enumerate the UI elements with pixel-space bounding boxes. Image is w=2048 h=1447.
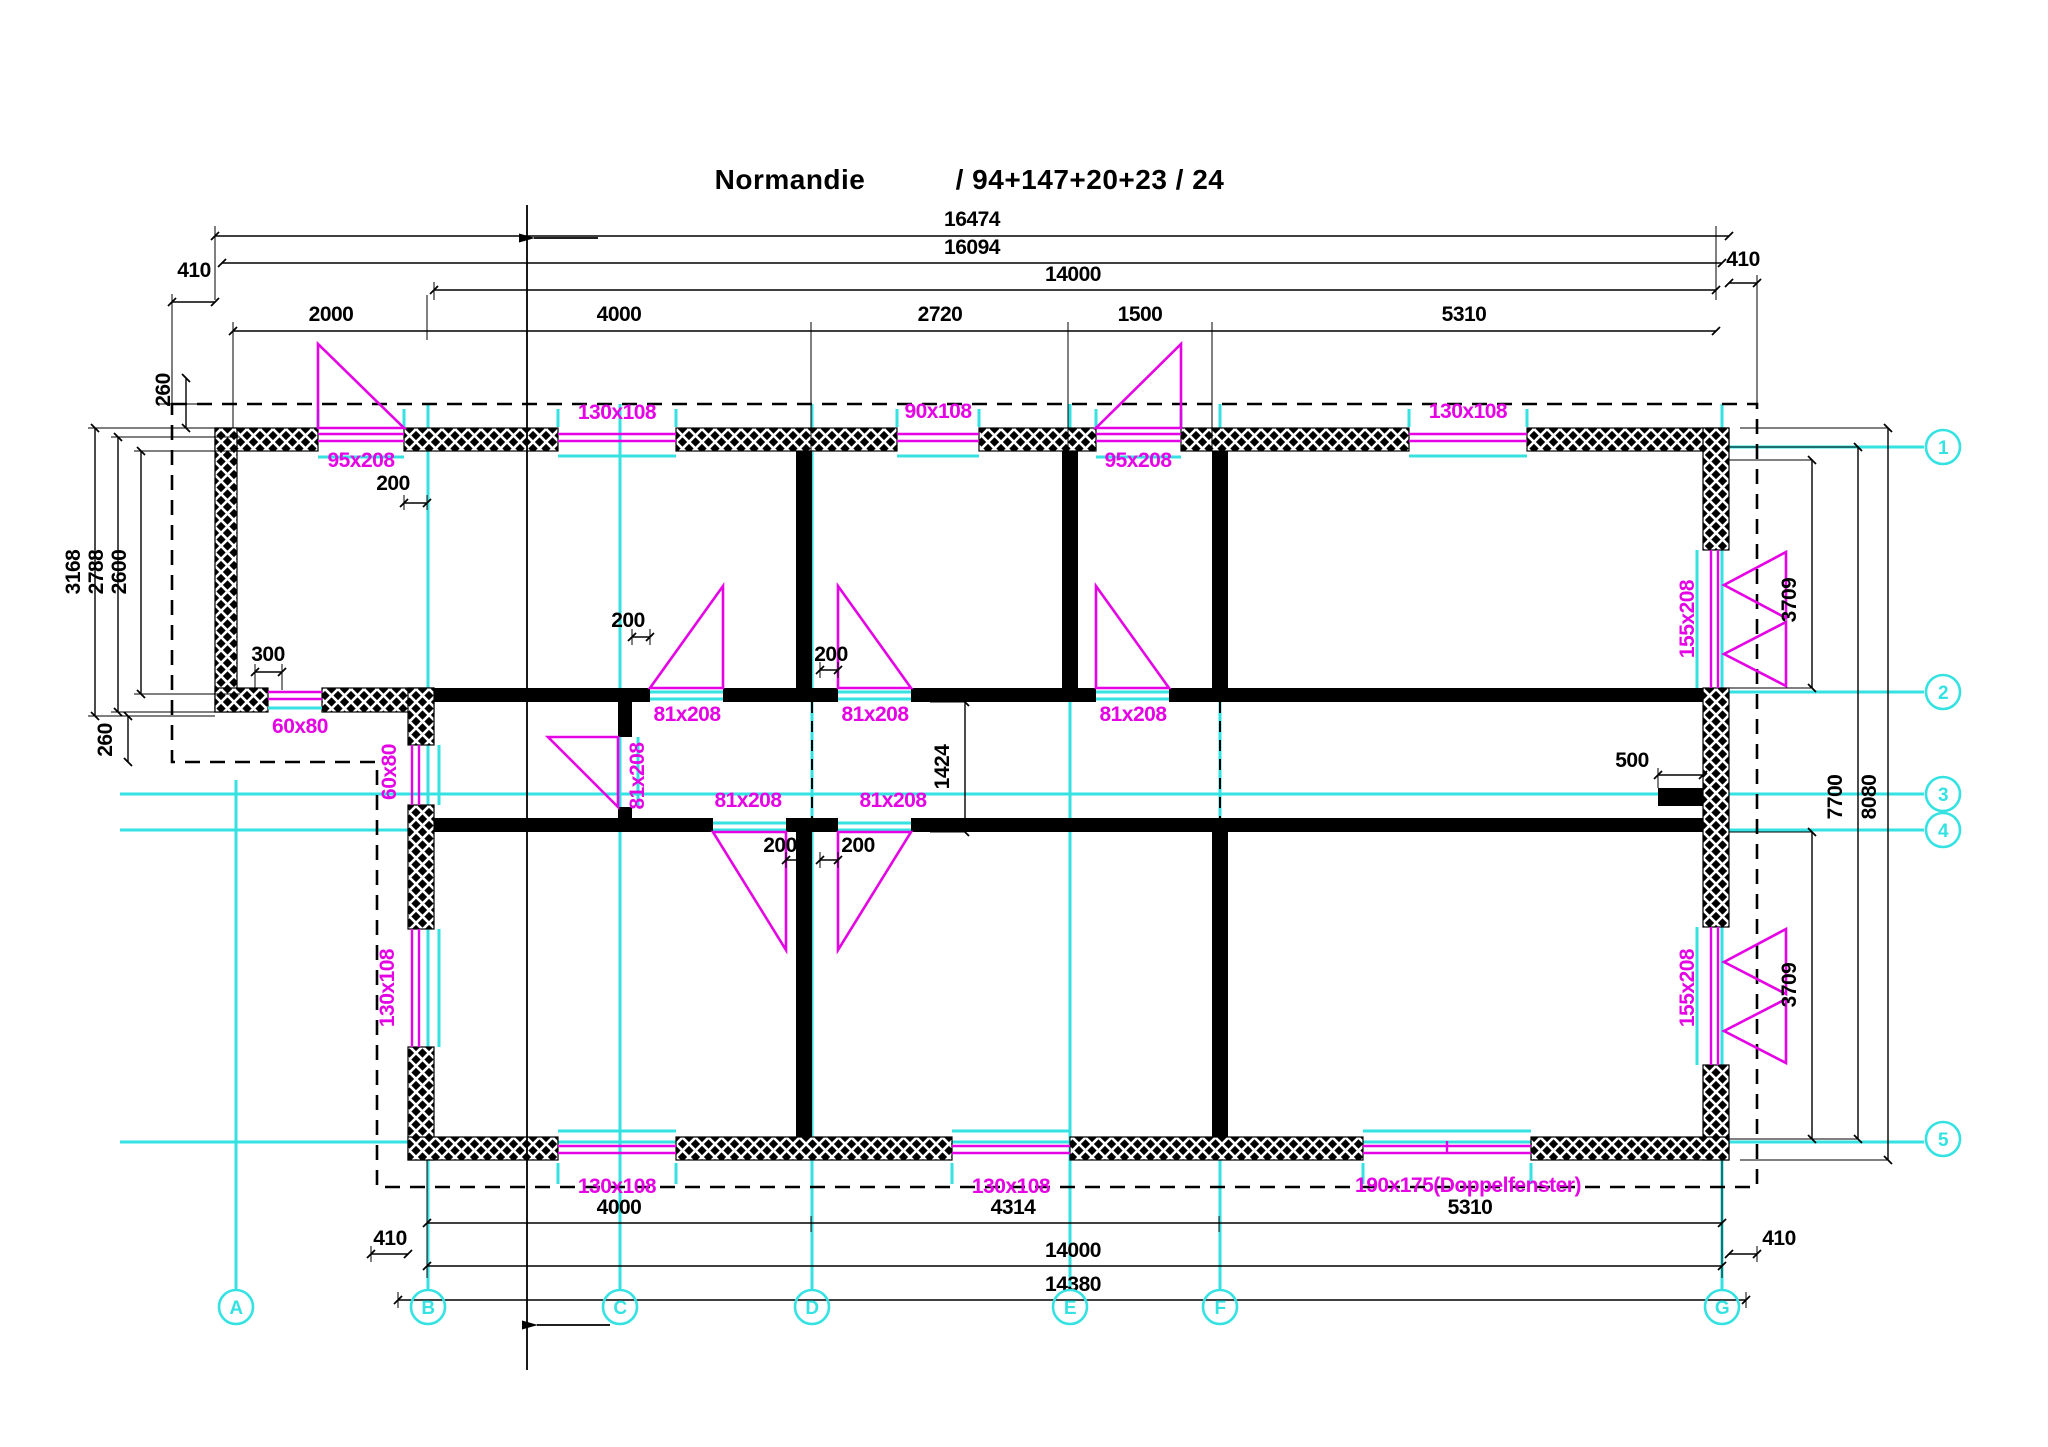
wall-segment — [404, 428, 558, 451]
dimension-label: 14380 — [1045, 1273, 1101, 1296]
opening-size-label: 81x208 — [859, 789, 927, 812]
dimension-label: 14000 — [1045, 263, 1101, 286]
dimension-label: 8080 — [1858, 775, 1881, 820]
opening-size-label: 155x208 — [1676, 948, 1699, 1027]
door-swing-81x208 — [548, 737, 618, 807]
wall-segment — [215, 428, 237, 712]
dimension-label: 7700 — [1824, 775, 1847, 820]
dimension-label: 500 — [1615, 749, 1649, 772]
opening-size-label: 60x80 — [378, 744, 401, 800]
dimension-label: 410 — [1726, 248, 1760, 271]
dimension-label: 16094 — [944, 236, 1001, 259]
svg-text:5: 5 — [1938, 1130, 1949, 1151]
dimension-label: 1424 — [931, 744, 954, 790]
wall-segment — [434, 688, 650, 702]
dimension-label: 410 — [373, 1227, 407, 1250]
dimension-label: 4000 — [597, 1196, 642, 1219]
grid-marker-B: B — [411, 1290, 445, 1324]
opening-size-label: 130x108 — [578, 1175, 657, 1198]
wall-segment — [979, 428, 1096, 451]
opening-size-label: 130x108 — [578, 401, 657, 424]
dimension-label: 4314 — [991, 1196, 1037, 1219]
drawing-title: Normandie — [715, 164, 866, 195]
svg-text:B: B — [421, 1298, 434, 1319]
wall-segment — [618, 807, 632, 832]
dimension-label: 1500 — [1118, 303, 1163, 326]
dimension-label: 5310 — [1448, 1196, 1493, 1219]
dimension-label: 2000 — [309, 303, 354, 326]
door-swing-81x208 — [838, 586, 911, 688]
grid-marker-3: 3 — [1926, 777, 1960, 811]
dimension-label: 5310 — [1442, 303, 1487, 326]
door-swing-95x208-left — [318, 344, 404, 428]
wall-segment — [1181, 428, 1409, 451]
wall-segment — [1527, 428, 1729, 451]
floor-plan-page: Normandie / 94+147+20+23 / 24 1647416094… — [0, 0, 2048, 1447]
dimension-label: 3709 — [1778, 963, 1801, 1008]
svg-text:2: 2 — [1938, 683, 1948, 704]
opening-size-label: 81x208 — [1099, 703, 1167, 726]
dimension-label: 200 — [814, 643, 848, 666]
wall-segment — [1169, 688, 1703, 702]
svg-text:E: E — [1064, 1298, 1076, 1319]
door-swing-95x208-right — [1096, 344, 1181, 428]
dimension-label: 3168 — [62, 549, 85, 595]
wall-segment — [618, 702, 632, 737]
wall-segment — [1070, 1137, 1363, 1160]
dimension-label: 260 — [152, 373, 175, 407]
annotation-labels: 1647416094140004104102000400027201500531… — [62, 208, 1881, 1296]
dimension-label: 16474 — [944, 208, 1001, 231]
grid-marker-F: F — [1203, 1290, 1237, 1324]
opening-linings — [268, 409, 1697, 1184]
dimension-label: 4000 — [597, 303, 642, 326]
opening-size-label: 130x108 — [972, 1175, 1051, 1198]
svg-text:D: D — [805, 1298, 818, 1319]
opening-size-label: 95x208 — [327, 449, 395, 472]
svg-text:G: G — [1715, 1298, 1729, 1319]
opening-size-label: 190x175(Doppelfenster) — [1355, 1174, 1581, 1197]
svg-text:4: 4 — [1938, 821, 1949, 842]
wall-segment — [1212, 451, 1228, 688]
svg-text:3: 3 — [1938, 785, 1948, 806]
grid-marker-5: 5 — [1926, 1122, 1960, 1156]
wall-segment — [1062, 451, 1078, 688]
floor-plan-canvas: Normandie / 94+147+20+23 / 24 1647416094… — [0, 0, 2048, 1447]
wall-segment — [796, 451, 812, 688]
door-swing-81x208 — [650, 586, 723, 688]
opening-size-label: 81x208 — [714, 789, 782, 812]
dimension-label: 14000 — [1045, 1239, 1101, 1262]
wall-segment — [676, 1137, 952, 1160]
svg-text:C: C — [613, 1298, 627, 1319]
wall-segment — [786, 818, 838, 832]
opening-size-label: 81x208 — [626, 742, 649, 810]
dimension-label: 2600 — [108, 550, 131, 595]
grid-marker-1: 1 — [1926, 430, 1960, 464]
wall-segment — [911, 818, 1703, 832]
dimension-label: 200 — [611, 609, 645, 632]
door-swing-symbols — [318, 344, 1786, 1063]
wall-segment — [215, 688, 268, 712]
wall-segment — [1658, 788, 1703, 806]
opening-size-label: 90x108 — [904, 400, 972, 423]
dimension-label: 410 — [177, 259, 211, 282]
opening-size-label: 60x80 — [272, 715, 328, 738]
drawing-code: / 94+147+20+23 / 24 — [956, 164, 1225, 195]
grid-marker-G: G — [1705, 1290, 1739, 1324]
double-door-swing-155x208-upper — [1724, 552, 1786, 686]
dimension-label: 200 — [376, 472, 410, 495]
door-swing-81x208 — [1096, 586, 1169, 688]
opening-size-label: 81x208 — [653, 703, 721, 726]
wall-segment — [796, 832, 812, 1137]
grid-marker-D: D — [795, 1290, 829, 1324]
grid-marker-2: 2 — [1926, 675, 1960, 709]
svg-text:F: F — [1214, 1298, 1225, 1319]
double-door-swing-155x208-lower — [1724, 929, 1786, 1063]
wall-segment — [1703, 688, 1729, 927]
dimension-label: 2788 — [85, 549, 108, 595]
dimension-label: 200 — [763, 834, 797, 857]
wall-segment — [408, 805, 434, 929]
wall-segment — [723, 688, 838, 702]
grid-marker-C: C — [603, 1290, 637, 1324]
wall-segment — [911, 688, 1096, 702]
wall-segment — [1703, 428, 1729, 550]
opening-size-label: 155x208 — [1676, 579, 1699, 658]
opening-size-label: 81x208 — [841, 703, 909, 726]
opening-size-label: 130x108 — [376, 948, 399, 1027]
wall-segment — [434, 818, 713, 832]
wall-segment — [676, 428, 897, 451]
svg-text:1: 1 — [1938, 438, 1949, 459]
dimension-label: 3709 — [1778, 578, 1801, 623]
grid-marker-A: A — [219, 1290, 253, 1324]
grid-marker-4: 4 — [1926, 813, 1960, 847]
wall-segment — [408, 688, 434, 745]
dimension-label: 300 — [251, 643, 285, 666]
opening-size-label: 95x208 — [1104, 449, 1172, 472]
opening-size-label: 130x108 — [1429, 400, 1508, 423]
dimension-label: 200 — [841, 834, 875, 857]
dimension-label: 2720 — [918, 303, 963, 326]
wall-segment — [408, 1137, 558, 1160]
dimension-label: 260 — [94, 723, 117, 757]
grid-markers: ABCDEFG12345 — [219, 430, 1960, 1324]
wall-segment — [1531, 1137, 1729, 1160]
svg-text:A: A — [229, 1298, 243, 1319]
wall-segment — [1212, 832, 1228, 1137]
dimension-label: 410 — [1762, 1227, 1796, 1250]
